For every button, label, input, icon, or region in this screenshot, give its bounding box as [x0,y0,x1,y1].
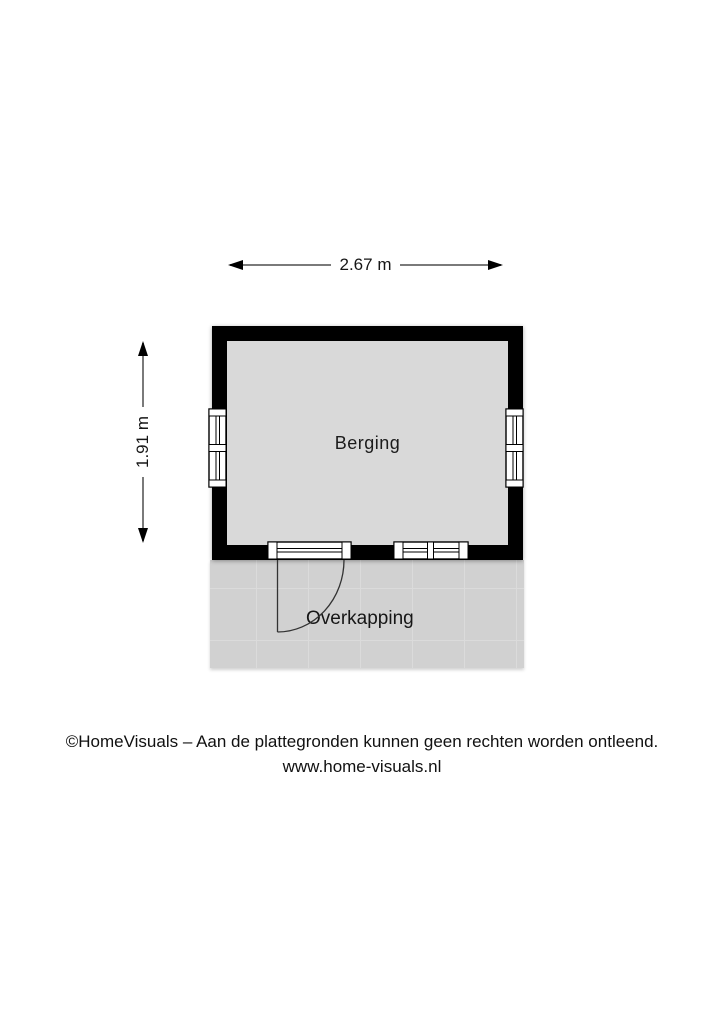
window-bottom-icon [393,541,469,560]
dimension-width: 2.67 m [228,257,503,273]
footer-disclaimer: ©HomeVisuals – Aan de plattegronden kunn… [0,730,724,755]
dimension-width-label: 2.67 m [331,255,401,275]
building-outline: Berging [212,326,523,560]
room-label: Berging [335,433,401,454]
arrow-left-icon [228,260,243,270]
dimension-height-label: 1.91 m [133,407,153,477]
arrow-right-icon [488,260,503,270]
door-swing-icon [270,558,350,638]
floorplan-page: 2.67 m 1.91 m Overkapping Berging [0,0,724,1024]
arrow-up-icon [138,341,148,356]
overkapping-area: Overkapping [210,560,524,668]
footer: ©HomeVisuals – Aan de plattegronden kunn… [0,730,724,779]
window-right-icon [505,408,524,488]
dimension-height: 1.91 m [135,341,151,543]
room-berging: Berging [227,341,508,545]
arrow-down-icon [138,528,148,543]
footer-website: www.home-visuals.nl [0,755,724,780]
window-left-icon [208,408,227,488]
